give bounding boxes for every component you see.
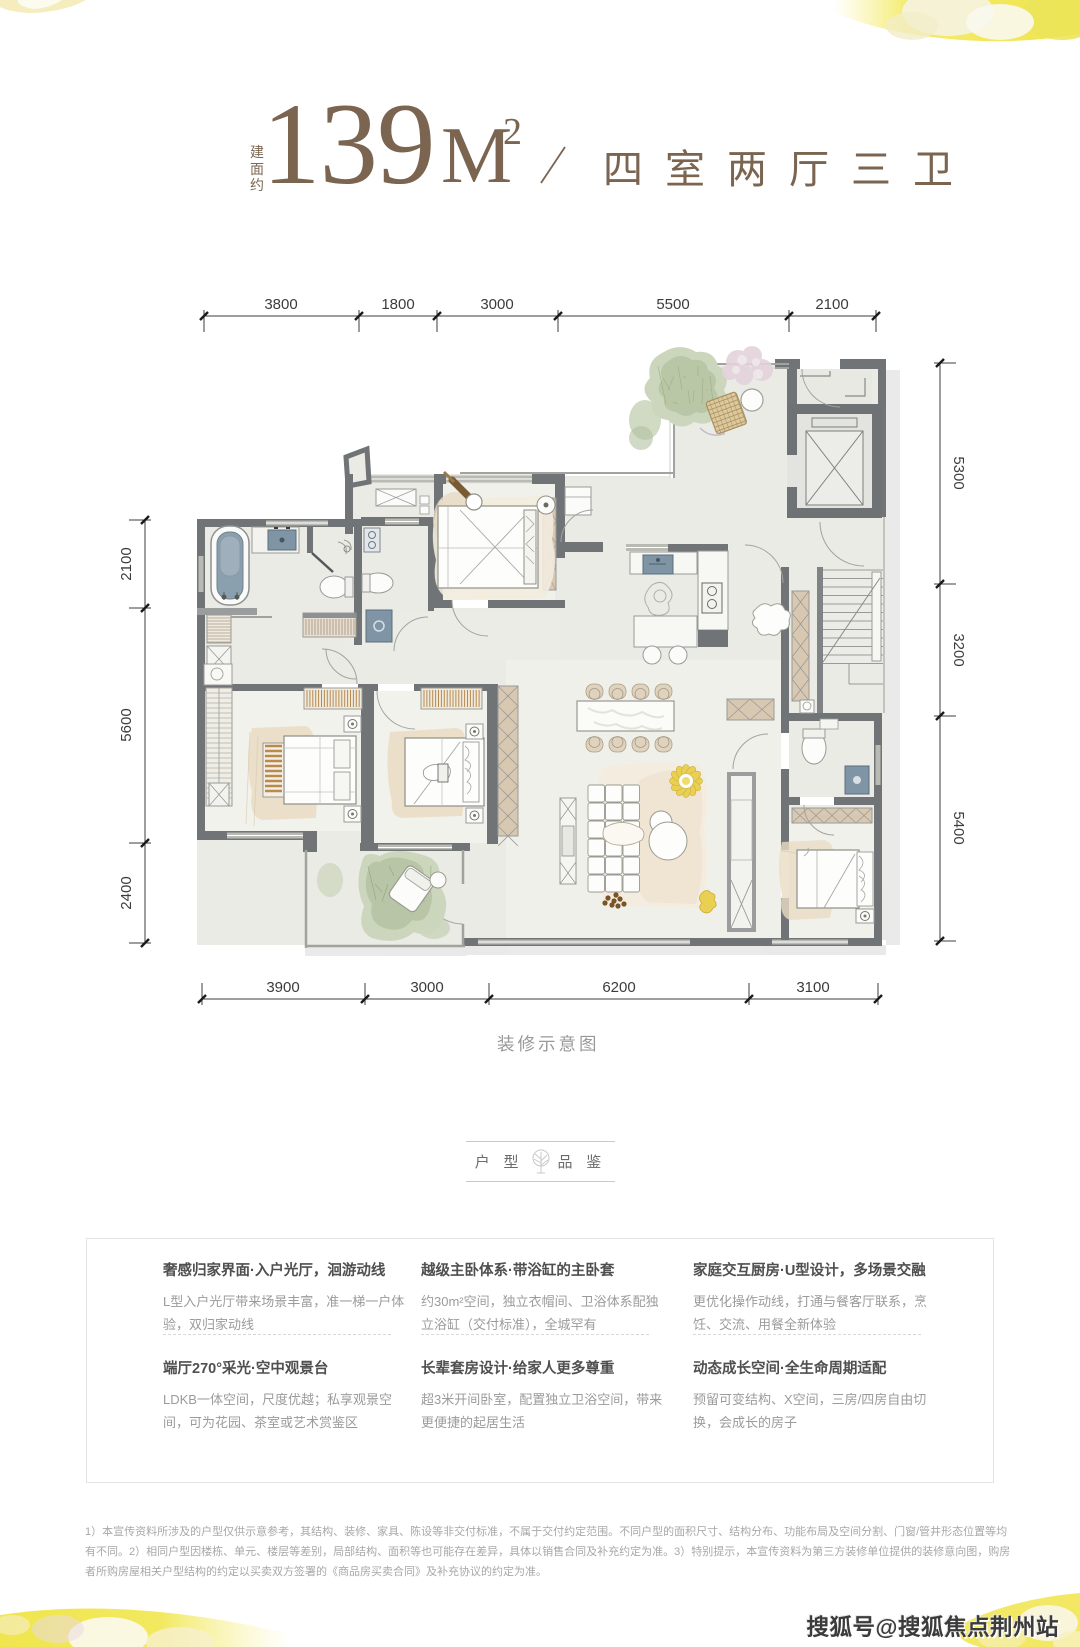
svg-text:5400: 5400 (950, 811, 967, 844)
svg-text:5600: 5600 (118, 708, 135, 741)
svg-text:3000: 3000 (480, 296, 513, 313)
svg-text:2100: 2100 (815, 296, 848, 313)
svg-text:2100: 2100 (118, 547, 135, 580)
svg-text:1800: 1800 (381, 296, 414, 313)
svg-text:5300: 5300 (950, 456, 967, 489)
svg-text:3900: 3900 (266, 979, 299, 996)
svg-text:2400: 2400 (118, 876, 135, 909)
svg-text:3200: 3200 (950, 633, 967, 666)
svg-text:3100: 3100 (796, 979, 829, 996)
svg-text:3800: 3800 (264, 296, 297, 313)
svg-text:5500: 5500 (656, 296, 689, 313)
svg-text:3000: 3000 (410, 979, 443, 996)
svg-text:6200: 6200 (602, 979, 635, 996)
